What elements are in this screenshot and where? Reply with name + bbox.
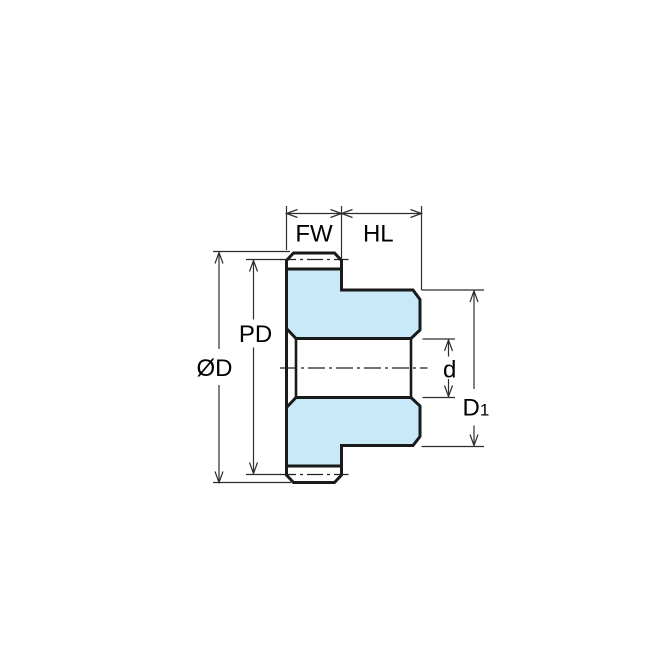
- svg-text:HL: HL: [363, 221, 394, 248]
- svg-text:FW: FW: [295, 221, 333, 248]
- svg-text:d: d: [443, 357, 456, 384]
- svg-text:ØD: ØD: [197, 355, 233, 382]
- svg-text:PD: PD: [239, 321, 272, 348]
